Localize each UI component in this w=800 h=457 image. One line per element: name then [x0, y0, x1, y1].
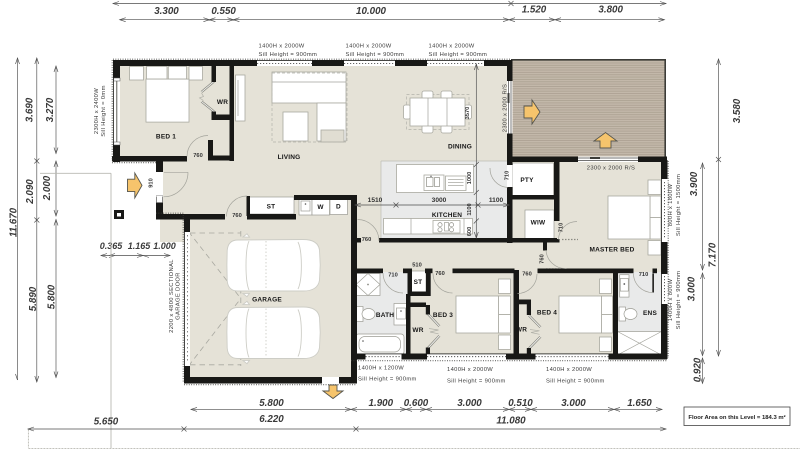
- svg-text:600: 600: [467, 227, 473, 237]
- svg-text:6.220: 6.220: [259, 414, 284, 425]
- svg-text:3000: 3000: [432, 197, 447, 204]
- svg-text:5.800: 5.800: [47, 284, 58, 309]
- svg-text:3.000: 3.000: [561, 398, 586, 409]
- svg-text:MASTER BED: MASTER BED: [590, 247, 635, 254]
- svg-text:1400H x 2000W: 1400H x 2000W: [447, 367, 493, 373]
- svg-text:0.920: 0.920: [693, 357, 704, 382]
- svg-text:5.650: 5.650: [94, 417, 119, 428]
- svg-text:910: 910: [149, 178, 155, 188]
- svg-text:1400H x 1200W: 1400H x 1200W: [358, 366, 404, 372]
- svg-text:11.670: 11.670: [9, 207, 20, 237]
- svg-text:760: 760: [435, 271, 445, 277]
- svg-text:Sill Height = 1500mm: Sill Height = 1500mm: [676, 174, 682, 236]
- svg-text:7.170: 7.170: [708, 242, 719, 267]
- svg-text:760: 760: [540, 254, 546, 264]
- svg-text:11.080: 11.080: [496, 416, 526, 427]
- svg-text:ST: ST: [267, 204, 276, 211]
- svg-text:710: 710: [639, 272, 649, 278]
- svg-text:710: 710: [388, 273, 398, 279]
- svg-text:760: 760: [522, 272, 532, 278]
- svg-text:10.000: 10.000: [356, 6, 387, 17]
- svg-text:3.900: 3.900: [689, 171, 700, 196]
- svg-text:ST: ST: [414, 279, 423, 286]
- svg-text:0.600: 0.600: [404, 398, 429, 409]
- svg-text:3.000: 3.000: [687, 276, 698, 301]
- svg-text:1400H x 2000W: 1400H x 2000W: [259, 43, 305, 49]
- svg-text:2.090: 2.090: [25, 179, 36, 205]
- svg-text:5.800: 5.800: [259, 398, 284, 409]
- svg-text:GARAGE: GARAGE: [252, 297, 282, 304]
- svg-text:2300 x 2000 R/S: 2300 x 2000 R/S: [503, 84, 509, 132]
- svg-text:D: D: [336, 204, 341, 211]
- svg-text:BED 3: BED 3: [433, 312, 453, 319]
- svg-text:2200 x 4800 SECTIONAL: 2200 x 4800 SECTIONAL: [169, 259, 175, 333]
- svg-text:3.580: 3.580: [732, 98, 743, 123]
- svg-text:1.000: 1.000: [153, 241, 176, 251]
- svg-text:BED 4: BED 4: [537, 310, 557, 317]
- svg-text:Sill Height = 900mm: Sill Height = 900mm: [676, 271, 682, 330]
- svg-text:0.510: 0.510: [508, 398, 533, 409]
- svg-text:W: W: [317, 204, 324, 211]
- svg-text:PTY: PTY: [520, 177, 534, 184]
- svg-text:2300 x 2000 R/S: 2300 x 2000 R/S: [587, 166, 635, 172]
- svg-text:1.165: 1.165: [128, 241, 152, 251]
- svg-text:Sill Height = 900mm: Sill Height = 900mm: [358, 377, 417, 383]
- svg-text:710: 710: [505, 171, 511, 181]
- svg-text:WIW: WIW: [531, 220, 546, 227]
- svg-text:800H x 1800W: 800H x 1800W: [668, 184, 674, 227]
- svg-text:1510: 1510: [368, 197, 383, 204]
- svg-text:510: 510: [412, 263, 422, 269]
- svg-text:Floor Area on this Level = 184: Floor Area on this Level = 184.3 m²: [688, 414, 785, 421]
- svg-text:Sill Height = 900mm: Sill Height = 900mm: [447, 379, 506, 385]
- svg-text:3.300: 3.300: [154, 6, 179, 17]
- svg-text:3570: 3570: [465, 107, 471, 120]
- svg-text:WR: WR: [516, 327, 527, 334]
- svg-text:WR: WR: [217, 99, 228, 106]
- svg-text:GARAGE DOOR: GARAGE DOOR: [176, 272, 182, 320]
- svg-text:3.690: 3.690: [25, 97, 36, 122]
- svg-text:5.890: 5.890: [28, 286, 39, 311]
- svg-text:ENS: ENS: [643, 310, 657, 317]
- svg-text:1100: 1100: [489, 197, 504, 204]
- svg-text:760: 760: [362, 237, 372, 243]
- svg-text:3.000: 3.000: [457, 398, 482, 409]
- svg-text:Sill Height = 900mm: Sill Height = 900mm: [429, 52, 488, 58]
- svg-text:760: 760: [232, 213, 242, 219]
- svg-text:1000: 1000: [467, 172, 473, 185]
- svg-text:3.270: 3.270: [45, 97, 56, 122]
- svg-text:LIVING: LIVING: [278, 154, 301, 161]
- svg-text:760: 760: [193, 153, 203, 159]
- svg-text:DINING: DINING: [448, 144, 472, 151]
- svg-text:BATH: BATH: [376, 312, 394, 319]
- svg-text:BED 1: BED 1: [156, 134, 176, 141]
- svg-text:0.550: 0.550: [211, 6, 236, 17]
- svg-text:710: 710: [559, 223, 565, 233]
- svg-text:1.520: 1.520: [522, 5, 547, 16]
- svg-text:2300H x 2400W: 2300H x 2400W: [94, 88, 100, 134]
- svg-text:0.365: 0.365: [100, 241, 124, 251]
- svg-text:Sill Height = 900mm: Sill Height = 900mm: [259, 52, 318, 58]
- svg-text:Sill Height = 900mm: Sill Height = 900mm: [346, 52, 405, 58]
- svg-text:1.650: 1.650: [627, 398, 652, 409]
- svg-text:1400H x 2000W: 1400H x 2000W: [429, 43, 475, 49]
- svg-text:Sill Height = 900mm: Sill Height = 900mm: [546, 379, 605, 385]
- svg-text:KITCHEN: KITCHEN: [432, 212, 462, 219]
- svg-text:1400H x 2000W: 1400H x 2000W: [346, 43, 392, 49]
- svg-text:1.900: 1.900: [369, 398, 394, 409]
- svg-text:2.000: 2.000: [42, 175, 53, 201]
- svg-text:1400H x 2000W: 1400H x 2000W: [546, 367, 592, 373]
- svg-text:WR: WR: [412, 327, 423, 334]
- svg-text:Sill Height = 0mm: Sill Height = 0mm: [101, 85, 107, 137]
- svg-text:3.800: 3.800: [598, 5, 623, 16]
- svg-text:1400H x 800W: 1400H x 800W: [668, 279, 674, 322]
